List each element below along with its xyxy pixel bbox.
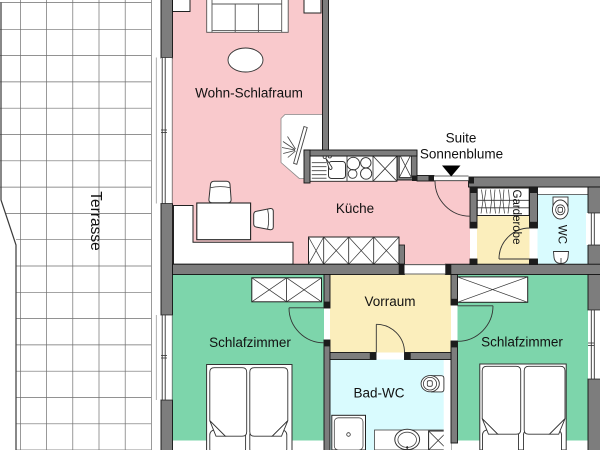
- svg-text:WC: WC: [556, 225, 568, 244]
- svg-text:Schlafzimmer: Schlafzimmer: [209, 335, 291, 350]
- svg-text:Sonnenblume: Sonnenblume: [420, 147, 503, 162]
- svg-text:Garderobe: Garderobe: [510, 190, 522, 245]
- svg-text:Vorraum: Vorraum: [364, 294, 415, 309]
- svg-text:Schlafzimmer: Schlafzimmer: [481, 335, 563, 350]
- svg-text:Wohn-Schlafraum: Wohn-Schlafraum: [195, 86, 303, 101]
- svg-text:Küche: Küche: [336, 201, 374, 216]
- svg-text:Terrasse: Terrasse: [87, 191, 104, 250]
- svg-text:Suite: Suite: [446, 131, 477, 146]
- svg-text:Bad-WC: Bad-WC: [353, 386, 404, 401]
